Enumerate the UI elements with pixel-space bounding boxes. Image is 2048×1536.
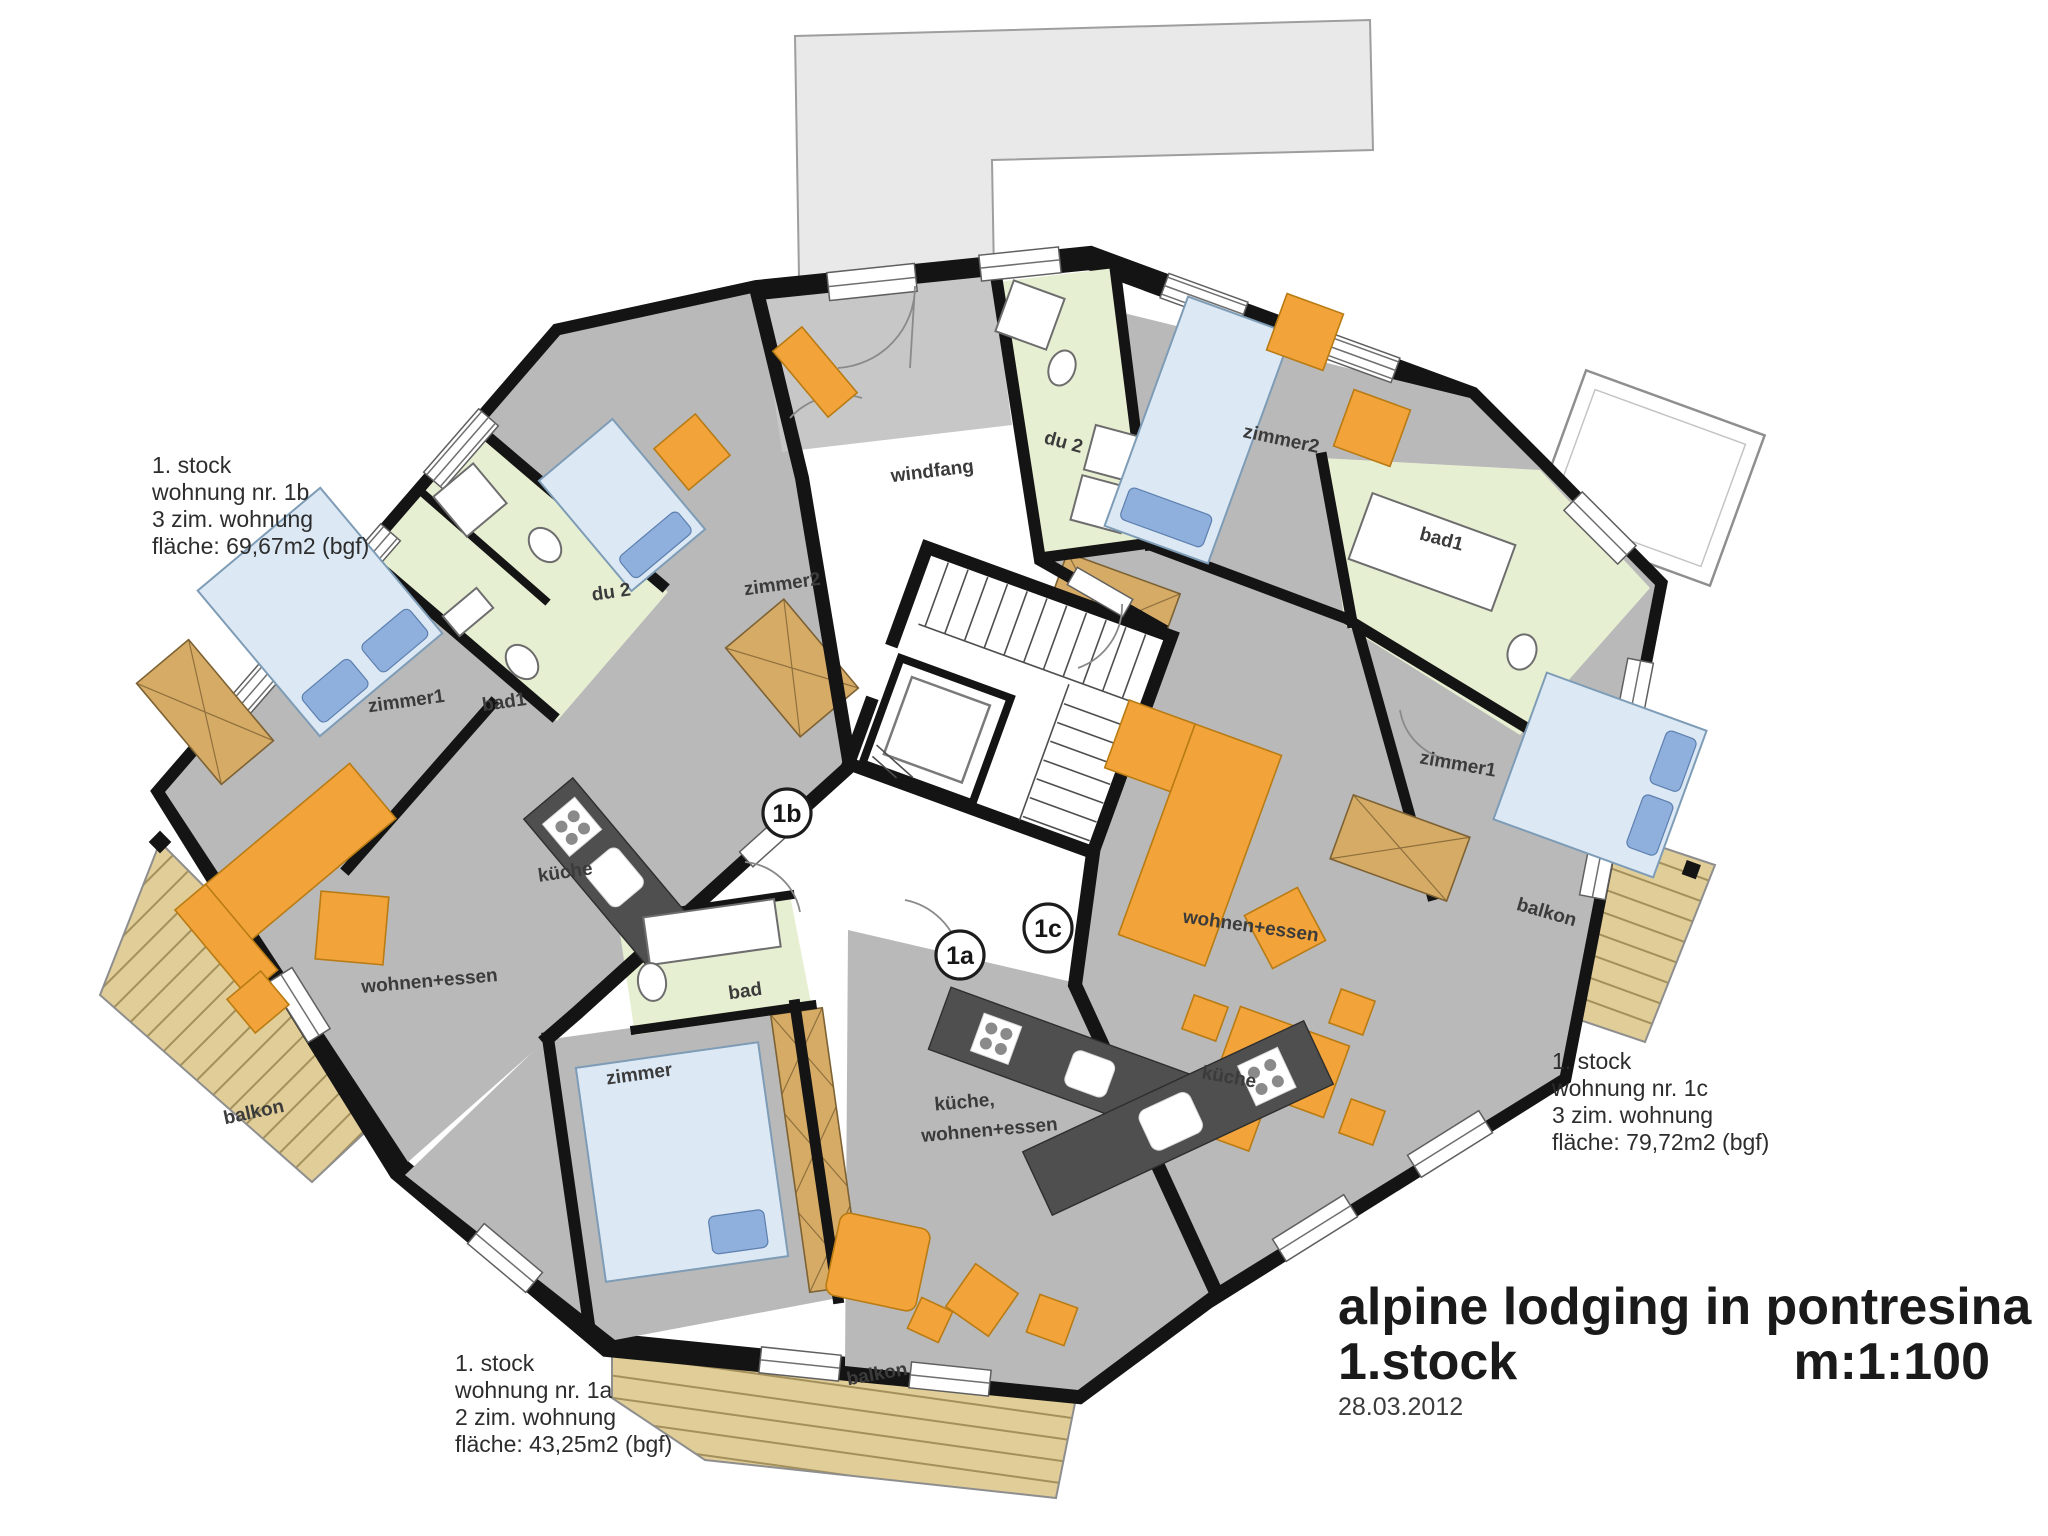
annotation-1a-line4: fläche: 43,25m2 (bgf) [455, 1431, 672, 1458]
annotation-1c-line2: wohnung nr. 1c [1552, 1075, 1769, 1102]
annotation-1c-line3: 3 zim. wohnung [1552, 1102, 1769, 1129]
unit-marker-1b: 1b [763, 789, 811, 837]
annotation-1b-line4: fläche: 69,67m2 (bgf) [152, 533, 369, 560]
annotation-1b-line3: 3 zim. wohnung [152, 506, 369, 533]
project-title: alpine lodging in pontresina [1338, 1280, 1990, 1334]
annotation-1a-line3: 2 zim. wohnung [455, 1404, 672, 1431]
armchair-1a [824, 1211, 931, 1312]
table-1b [315, 891, 389, 965]
annotation-1b-line2: wohnung nr. 1b [152, 479, 369, 506]
annotation-1c-line1: 1. stock [1552, 1048, 1769, 1075]
annotation-1a-line1: 1. stock [455, 1350, 672, 1377]
svg-text:1b: 1b [772, 800, 801, 828]
scale-label: m:1:100 [1793, 1334, 1990, 1390]
annotation-1a: 1. stock wohnung nr. 1a 2 zim. wohnung f… [455, 1350, 672, 1458]
annotation-1b-line1: 1. stock [152, 452, 369, 479]
svg-text:1c: 1c [1034, 915, 1062, 943]
annotation-1c-line4: fläche: 79,72m2 (bgf) [1552, 1129, 1769, 1156]
floor-plan-page: windfang zimmer1 bad1 du 2 zimmer2 küche… [0, 0, 2048, 1536]
title-block: alpine lodging in pontresina 1.stock m:1… [1338, 1280, 1990, 1422]
floor-title: 1.stock [1338, 1334, 1517, 1390]
annotation-1a-line2: wohnung nr. 1a [455, 1377, 672, 1404]
annotation-1c: 1. stock wohnung nr. 1c 3 zim. wohnung f… [1552, 1048, 1769, 1156]
unit-marker-1a: 1a [936, 931, 984, 979]
plan-date: 28.03.2012 [1338, 1393, 1990, 1422]
svg-text:1a: 1a [946, 942, 975, 970]
unit-marker-1c: 1c [1024, 904, 1072, 952]
annotation-1b: 1. stock wohnung nr. 1b 3 zim. wohnung f… [152, 452, 369, 560]
